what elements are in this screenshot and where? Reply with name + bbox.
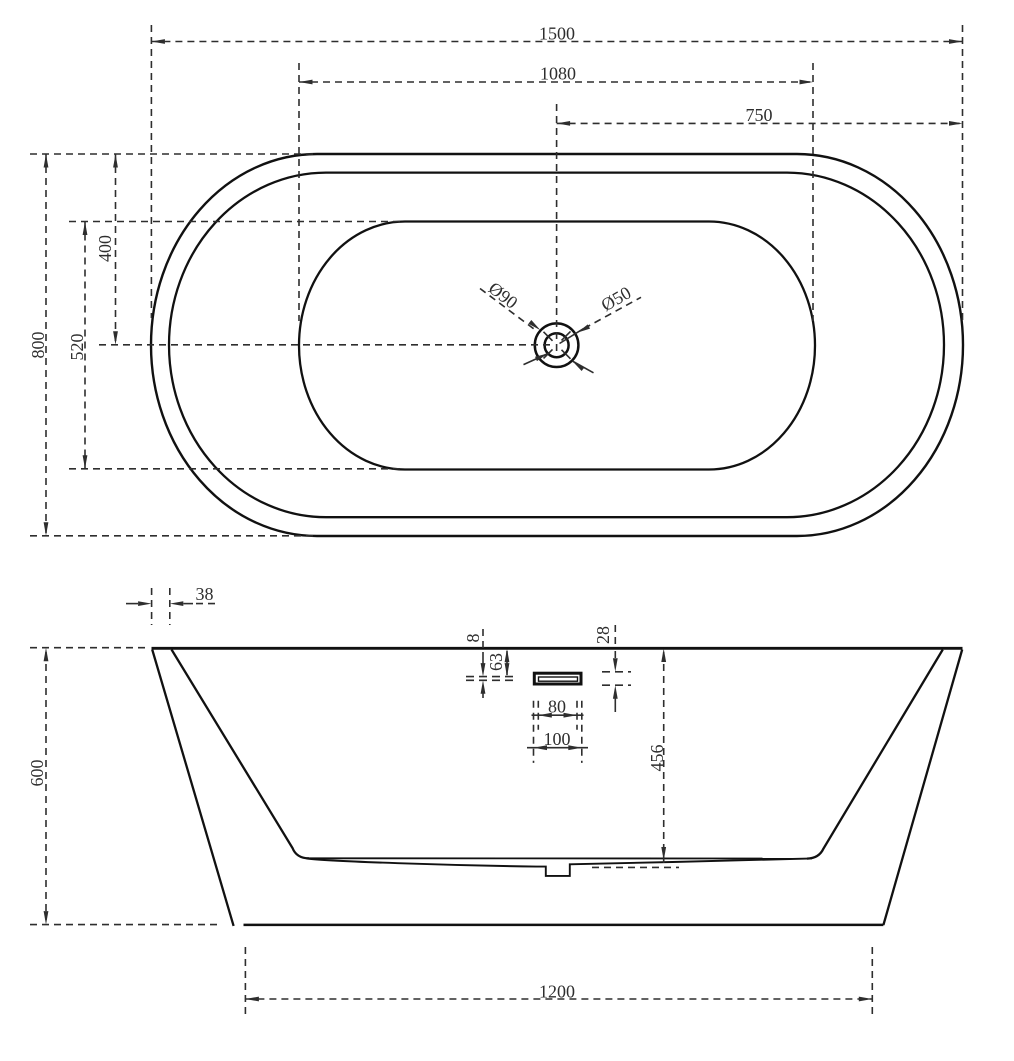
- svg-text:8: 8: [463, 634, 483, 643]
- svg-text:1080: 1080: [540, 64, 576, 84]
- svg-text:63: 63: [486, 653, 506, 671]
- svg-text:1500: 1500: [539, 24, 575, 44]
- svg-text:28: 28: [593, 626, 613, 644]
- svg-text:800: 800: [28, 332, 48, 359]
- svg-text:1200: 1200: [539, 982, 575, 1002]
- svg-text:Ø50: Ø50: [598, 282, 635, 315]
- svg-text:38: 38: [196, 584, 214, 604]
- svg-text:Ø90: Ø90: [485, 278, 522, 313]
- svg-text:600: 600: [27, 760, 47, 787]
- svg-text:520: 520: [67, 334, 87, 361]
- svg-text:456: 456: [647, 745, 667, 772]
- svg-text:750: 750: [746, 105, 773, 125]
- svg-text:100: 100: [544, 729, 571, 749]
- svg-text:400: 400: [95, 235, 115, 262]
- svg-text:80: 80: [548, 697, 566, 717]
